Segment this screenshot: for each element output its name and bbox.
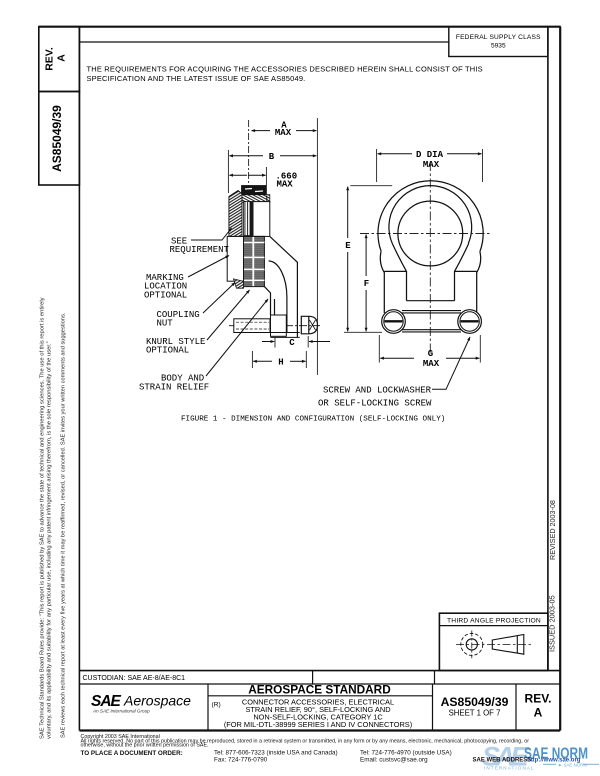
svg-text:OR SELF-LOCKING SCREW: OR SELF-LOCKING SCREW xyxy=(318,399,432,409)
svg-text:REV.: REV. xyxy=(525,692,552,706)
svg-text:C: C xyxy=(289,338,295,348)
svg-text:THE REQUIREMENTS FOR ACQUIRING: THE REQUIREMENTS FOR ACQUIRING THE ACCES… xyxy=(87,65,483,74)
svg-text:SCREW AND LOCKWASHER: SCREW AND LOCKWASHER xyxy=(323,386,432,396)
svg-text:B: B xyxy=(269,152,275,162)
svg-text:THIRD ANGLE PROJECTION: THIRD ANGLE PROJECTION xyxy=(447,617,541,624)
svg-text:SAE Technical Standards Board: SAE Technical Standards Board Rules prov… xyxy=(40,297,46,739)
svg-text:Email: custsvc@sae.org: Email: custsvc@sae.org xyxy=(360,757,428,764)
svg-text:F: F xyxy=(364,279,369,289)
svg-text:AEROSPACE STANDARD: AEROSPACE STANDARD xyxy=(248,683,391,697)
svg-text:SAE: SAE xyxy=(91,693,122,710)
svg-text:H: H xyxy=(278,358,283,368)
svg-text:STRAIN RELIEF: STRAIN RELIEF xyxy=(139,383,209,393)
svg-text:REQUIREMENT: REQUIREMENT xyxy=(170,245,230,255)
svg-text:G: G xyxy=(428,349,433,359)
svg-text:voluntary, and its applicabili: voluntary, and its applicability and sui… xyxy=(47,341,53,739)
svg-text:(FOR MIL-DTL-38999 SERIES I AN: (FOR MIL-DTL-38999 SERIES I AND IV CONNE… xyxy=(224,720,412,729)
svg-text:CUSTODIAN: SAE AE-8/AE-8C1: CUSTODIAN: SAE AE-8/AE-8C1 xyxy=(83,675,186,682)
svg-text:An SAE International Group: An SAE International Group xyxy=(92,709,150,714)
svg-text:REVISED 2003-08: REVISED 2003-08 xyxy=(548,500,557,560)
svg-text:ISSUED 2003-05: ISSUED 2003-05 xyxy=(548,595,557,652)
svg-text:Fax: 724-776-0790: Fax: 724-776-0790 xyxy=(214,757,268,764)
svg-text:NUT: NUT xyxy=(157,319,174,329)
svg-text:D DIA: D DIA xyxy=(416,150,444,160)
svg-text:TO PLACE A DOCUMENT ORDER:: TO PLACE A DOCUMENT ORDER: xyxy=(81,750,183,757)
svg-text:5935: 5935 xyxy=(491,43,506,50)
svg-text:OPTIONAL: OPTIONAL xyxy=(146,346,189,356)
svg-text:A: A xyxy=(56,54,68,62)
svg-text:AS85049/39: AS85049/39 xyxy=(441,695,509,709)
svg-text:http://www.sae.org: http://www.sae.org xyxy=(527,758,581,764)
svg-text:otherwise, without the prior w: otherwise, without the prior written per… xyxy=(81,743,209,749)
svg-text:E: E xyxy=(345,241,351,251)
svg-text:Tel: 877-606-7323 (inside USA: Tel: 877-606-7323 (inside USA and Canada… xyxy=(214,750,338,757)
svg-text:FEDERAL SUPPLY CLASS: FEDERAL SUPPLY CLASS xyxy=(456,34,541,41)
svg-text:SAE WEB ADDRESS:: SAE WEB ADDRESS: xyxy=(473,758,534,764)
svg-text:SAE reviews each technical rep: SAE reviews each technical report at lea… xyxy=(61,312,67,738)
svg-text:(R): (R) xyxy=(212,702,221,709)
svg-text:MAX: MAX xyxy=(275,128,292,138)
svg-text:Aerospace: Aerospace xyxy=(123,693,191,709)
svg-text:OPTIONAL: OPTIONAL xyxy=(144,290,187,300)
svg-text:REV.: REV. xyxy=(44,47,56,71)
svg-text:FIGURE 1 - DIMENSION AND CONFI: FIGURE 1 - DIMENSION AND CONFIGURATION (… xyxy=(181,416,445,424)
svg-text:MAX: MAX xyxy=(423,160,440,170)
svg-text:SPECIFICATION AND THE LATEST I: SPECIFICATION AND THE LATEST ISSUE OF SA… xyxy=(87,74,306,83)
svg-text:Tel: 724-776-4970 (outside US: Tel: 724-776-4970 (outside USA) xyxy=(360,750,452,757)
svg-text:MAX: MAX xyxy=(277,179,294,189)
svg-text:MAX: MAX xyxy=(423,359,440,369)
svg-text:SHEET 1 OF 7: SHEET 1 OF 7 xyxy=(449,709,501,718)
svg-text:AS85049/39: AS85049/39 xyxy=(50,105,64,172)
svg-text:INTERNATIONAL: INTERNATIONAL xyxy=(484,765,535,770)
svg-text:A: A xyxy=(534,706,543,720)
